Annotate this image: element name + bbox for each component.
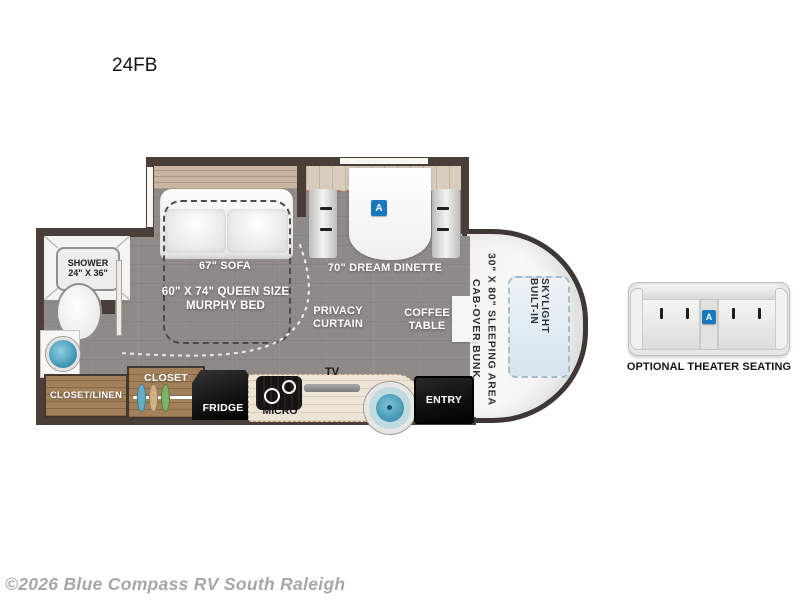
dinette-bench-right	[432, 189, 460, 258]
theater-caption: OPTIONAL THEATER SEATING	[618, 361, 800, 374]
theater-arm-right	[775, 288, 788, 350]
skylight-label: BUILT-IN SKYLIGHT	[528, 278, 550, 376]
sofa-label: 67" SOFA	[165, 260, 285, 273]
hanger-blue-icon	[137, 384, 146, 412]
seatbelt-mark	[686, 308, 689, 319]
floorplan-page: 24FB	[0, 0, 800, 600]
privacy-label-line2: CURTAIN	[300, 318, 376, 331]
coffee-table-label: COFFEE TABLE	[396, 307, 458, 333]
murphy-bed-label-line2: MURPHY BED	[148, 300, 303, 314]
copyright-watermark: ©2026 Blue Compass RV South Raleigh	[5, 574, 345, 595]
entry-label: ENTRY	[426, 394, 462, 407]
burner-icon	[282, 380, 296, 394]
tv	[304, 384, 360, 392]
privacy-label-line1: PRIVACY	[300, 305, 376, 318]
shower-size-label: 24" X 36"	[68, 269, 108, 279]
burner-icon	[264, 388, 280, 404]
seatbelt-mark	[732, 308, 735, 319]
seatbelt-mark	[437, 228, 449, 231]
privacy-curtain-label: PRIVACY CURTAIN	[300, 305, 376, 331]
murphy-bed-label: 60" X 74" QUEEN SIZE MURPHY BED	[148, 286, 303, 314]
bath-pocket-door	[116, 260, 122, 336]
fridge: FRIDGE	[192, 370, 254, 420]
theater-seat-right	[718, 299, 776, 350]
dinette-label: 70" DREAM DINETTE	[310, 262, 460, 275]
cab-over-bunk-area: CAB-OVER BUNK 30" X 80" SLEEPING AREA	[468, 236, 508, 422]
theater-seat-left	[642, 299, 700, 350]
tv-label: TV	[308, 366, 356, 379]
micro-label: MICRO	[252, 405, 308, 418]
closet-label: CLOSET	[129, 372, 203, 385]
entry-door: ENTRY	[414, 376, 474, 424]
optional-theater-seating: A	[628, 282, 790, 356]
seatbelt-mark	[320, 228, 332, 231]
dinette-table	[349, 168, 431, 260]
closet-linen-cabinet: CLOSET/LINEN	[44, 374, 128, 418]
table-position-badge: A	[371, 200, 387, 216]
theater-console	[700, 299, 718, 350]
seatbelt-mark	[437, 207, 449, 210]
coffee-label-line2: TABLE	[396, 320, 458, 333]
hanger-green-icon	[161, 384, 170, 412]
theater-backrest	[636, 285, 782, 300]
theater-position-badge: A	[702, 310, 716, 324]
seatbelt-mark	[758, 308, 761, 319]
bunk-label-line2: 30" X 80" SLEEPING AREA	[483, 236, 498, 422]
floorplan-diagram: A SHOWER 24" X 36" CLOSET/LINEN	[0, 0, 620, 460]
kitchen-sink-drain	[387, 405, 392, 410]
dinette-bench-left	[309, 189, 337, 258]
hanger-tan-icon	[149, 384, 158, 412]
kitchen-sink	[364, 382, 416, 434]
bath-sink	[46, 337, 80, 371]
murphy-bed-label-line1: 60" X 74" QUEEN SIZE	[148, 286, 303, 300]
fridge-label: FRIDGE	[203, 402, 244, 415]
coffee-label-line1: COFFEE	[396, 307, 458, 320]
built-in-skylight: BUILT-IN SKYLIGHT	[508, 276, 570, 378]
seatbelt-mark	[320, 207, 332, 210]
bunk-label-line1: CAB-OVER BUNK	[468, 236, 483, 422]
closet-linen-label: CLOSET/LINEN	[50, 390, 122, 401]
seatbelt-mark	[660, 308, 663, 319]
